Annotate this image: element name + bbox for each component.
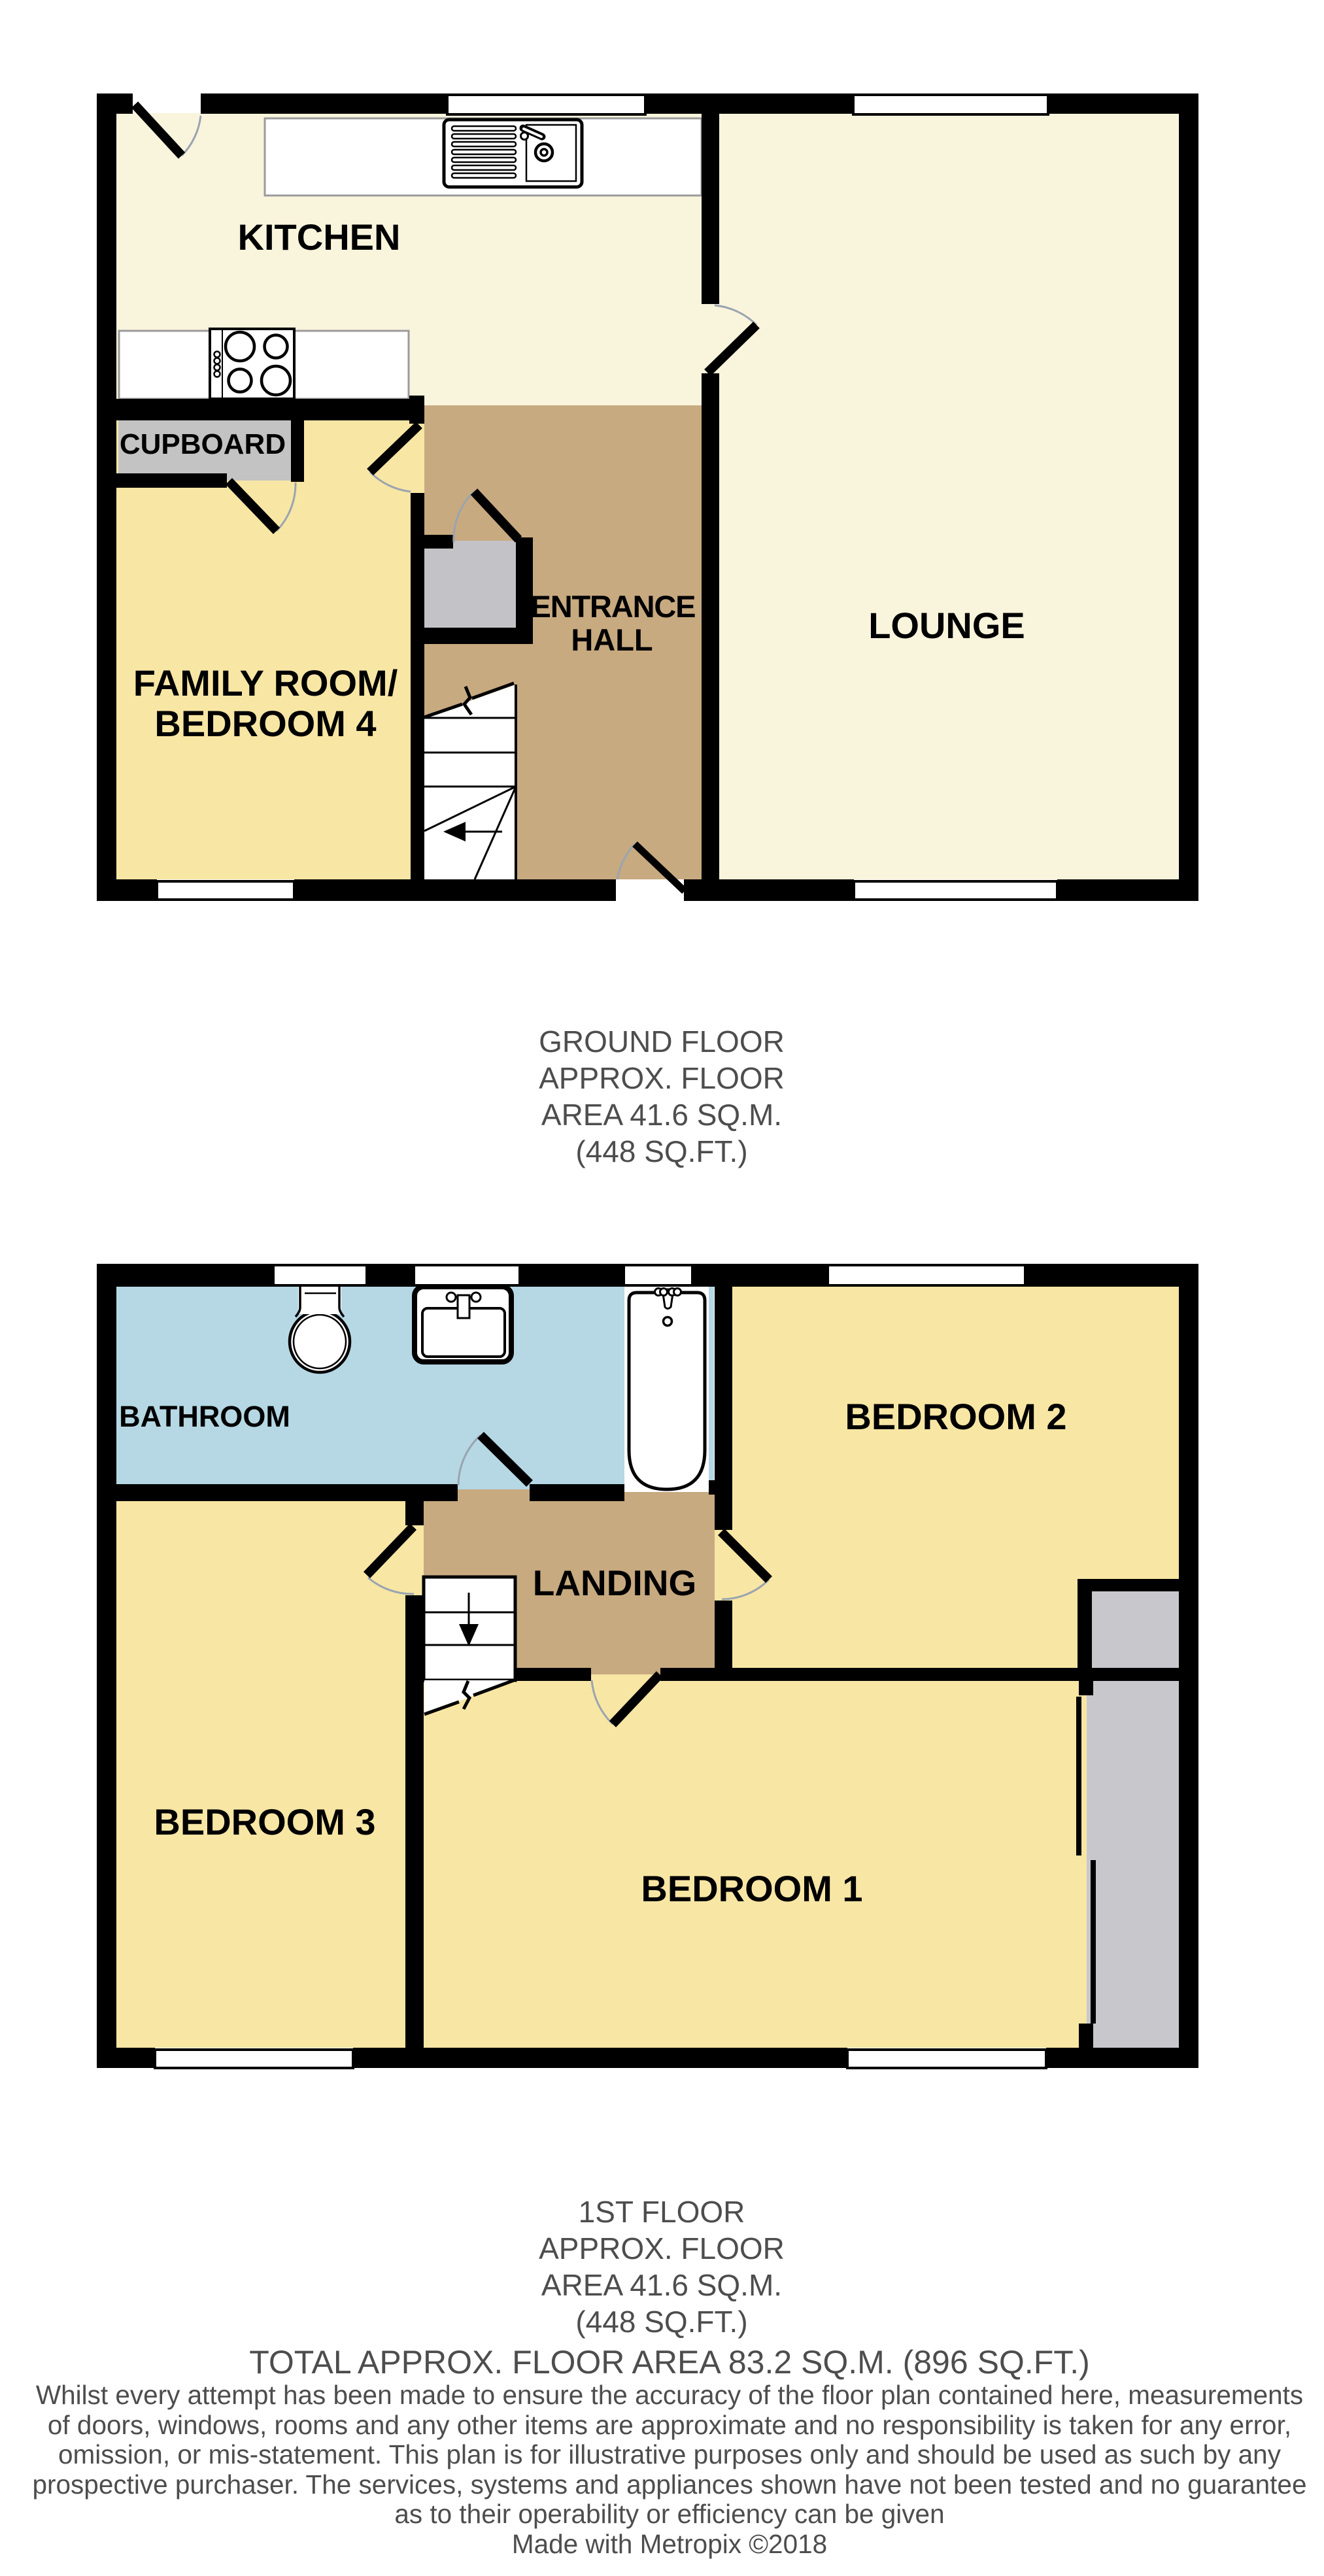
- svg-text:(448 SQ.FT.): (448 SQ.FT.): [575, 1134, 747, 1168]
- svg-text:GROUND FLOOR: GROUND FLOOR: [539, 1025, 785, 1059]
- svg-text:FAMILY ROOM/: FAMILY ROOM/: [133, 662, 398, 703]
- svg-text:AREA 41.6 SQ.M.: AREA 41.6 SQ.M.: [541, 1098, 782, 1132]
- svg-text:BEDROOM 3: BEDROOM 3: [154, 1801, 375, 1842]
- svg-text:1ST FLOOR: 1ST FLOOR: [579, 2195, 745, 2229]
- svg-text:KITCHEN: KITCHEN: [238, 216, 401, 258]
- svg-text:Made with Metropix ©2018: Made with Metropix ©2018: [512, 2529, 827, 2559]
- svg-text:omission, or mis-statement. Th: omission, or mis-statement. This plan is…: [58, 2439, 1282, 2469]
- svg-text:BATHROOM: BATHROOM: [119, 1400, 290, 1433]
- svg-text:BEDROOM 1: BEDROOM 1: [641, 1868, 862, 1909]
- svg-text:ENTRANCE: ENTRANCE: [531, 589, 696, 624]
- svg-text:of doors, windows, rooms and a: of doors, windows, rooms and any other i…: [48, 2410, 1291, 2440]
- svg-text:Whilst every attempt has been: Whilst every attempt has been made to en…: [36, 2380, 1303, 2410]
- svg-text:prospective purchaser. The ser: prospective purchaser. The services, sys…: [33, 2469, 1307, 2500]
- svg-text:BEDROOM 4: BEDROOM 4: [154, 703, 376, 744]
- svg-text:APPROX. FLOOR: APPROX. FLOOR: [539, 2231, 785, 2265]
- svg-text:LOUNGE: LOUNGE: [868, 605, 1025, 646]
- svg-text:AREA 41.6 SQ.M.: AREA 41.6 SQ.M.: [541, 2268, 782, 2302]
- svg-text:CUPBOARD: CUPBOARD: [120, 428, 286, 460]
- svg-text:(448 SQ.FT.): (448 SQ.FT.): [575, 2305, 747, 2339]
- svg-text:HALL: HALL: [571, 622, 653, 657]
- svg-text:BEDROOM 2: BEDROOM 2: [845, 1396, 1066, 1437]
- svg-text:TOTAL APPROX. FLOOR AREA 83.2: TOTAL APPROX. FLOOR AREA 83.2 SQ.M. (896…: [249, 2344, 1090, 2381]
- svg-text:LANDING: LANDING: [533, 1563, 697, 1603]
- svg-text:APPROX. FLOOR: APPROX. FLOOR: [539, 1061, 785, 1095]
- svg-text:as to their operability or eff: as to their operability or efficiency ca…: [394, 2499, 944, 2529]
